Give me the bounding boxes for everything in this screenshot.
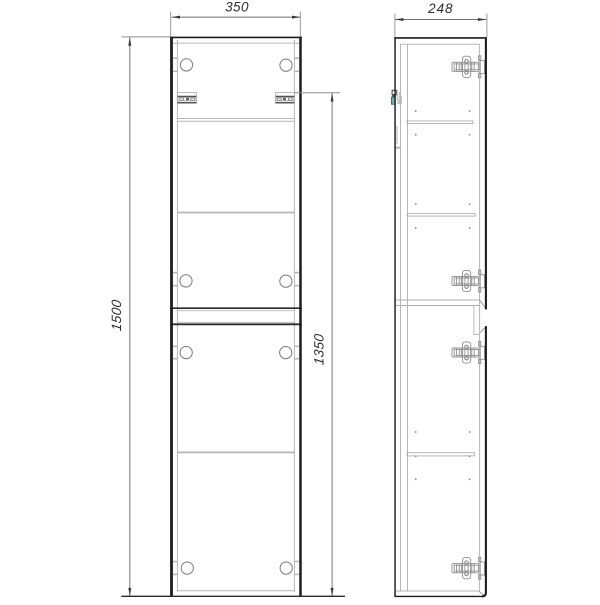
svg-text:350: 350 [225,0,249,14]
svg-text:1350: 1350 [312,333,327,366]
svg-text:1500: 1500 [109,299,124,332]
svg-text:248: 248 [427,1,453,16]
